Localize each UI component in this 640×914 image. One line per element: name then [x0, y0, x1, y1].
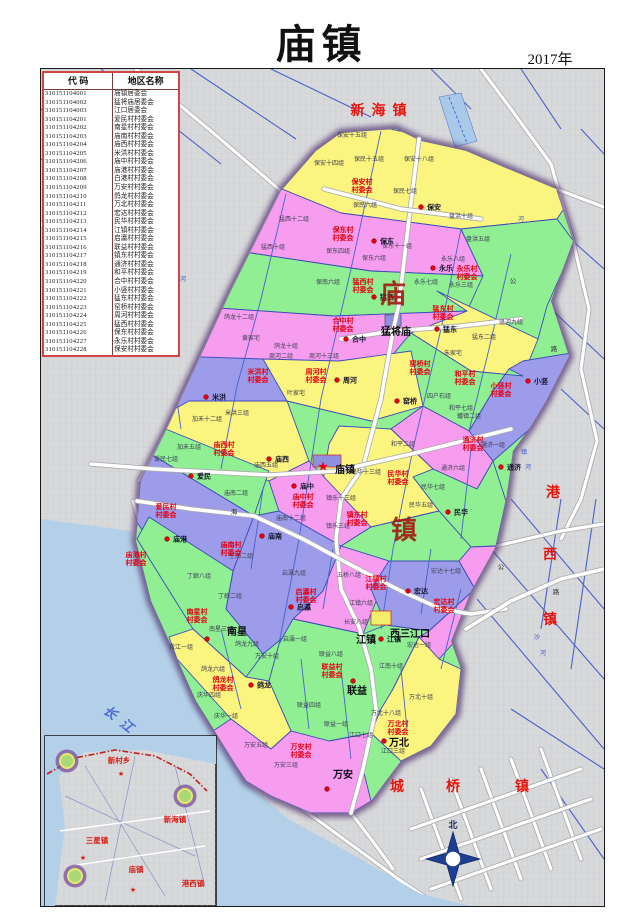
village-seat-dot: [419, 205, 424, 210]
legend-row: 310151104210鸽龙村村委会: [44, 193, 178, 202]
legend-name-cell: 庙镇居委会: [113, 90, 178, 99]
legend-code-cell: 310151104212: [44, 210, 113, 219]
legend-code-cell: 310151104208: [44, 175, 113, 184]
village-committee-label: 庙中村村委会: [293, 492, 315, 509]
neighbor-town-north: 新海镇: [351, 102, 414, 118]
village-committee-label: 合中村村委会: [332, 316, 355, 333]
legend-code-cell: 310151104206: [44, 158, 113, 167]
hamlet-label: 救江一组: [169, 643, 193, 651]
hamlet-label: 保南六组: [316, 278, 340, 286]
hamlet-label: 黄家宅: [242, 334, 260, 342]
legend-row: 310151104218通济村村委会: [44, 261, 178, 270]
hamlet-label: 保东四组: [326, 247, 350, 255]
legend-code-cell: 310151104217: [44, 252, 113, 261]
hamlet-label: 保东六组: [362, 254, 386, 262]
village-seat-name: 庙港: [173, 535, 188, 544]
hamlet-label: 周河二组: [269, 352, 293, 360]
village-seat-dot: [379, 637, 384, 642]
legend-code-cell: 310151104204: [44, 141, 113, 150]
village-committee-label: 庙港村村委会: [126, 550, 148, 567]
village-seat-dot: [260, 534, 265, 539]
legend-row: 310151104212宏达村村委会: [44, 210, 178, 219]
hamlet-label: 蟠镇二组: [457, 412, 481, 420]
page: { "page": {"title": "庙镇", "year": "2017年…: [0, 0, 640, 914]
neighbor-town-east-char: 港: [546, 484, 561, 500]
village-seat-name: 庙南: [268, 532, 282, 541]
legend-row: 310151104208白港村村委会: [44, 175, 178, 184]
legend-row: 310151104201爱民村村委会: [44, 116, 178, 125]
legend-name-cell: 鸽龙村村委会: [113, 193, 178, 202]
village-seat-name: 周河: [343, 376, 357, 385]
canal-name-char: 河: [540, 649, 546, 657]
legend-name-cell: 民华村村委会: [113, 218, 178, 227]
village-seat-dot: [289, 605, 294, 610]
legend-row: 310151104227永乐村村委会: [44, 338, 178, 347]
neighbor-town-south-char: 桥: [446, 778, 461, 794]
village-seat-name: 合中: [351, 335, 366, 344]
legend-name-cell: 庙南村村委会: [113, 133, 178, 142]
legend-name-cell: 镇东村村委会: [113, 252, 178, 261]
legend-row: 310151104206庙中村村委会: [44, 158, 178, 167]
legend-name-cell: 窑桥村村委会: [113, 304, 178, 313]
legend-code-cell: 310151104228: [44, 346, 113, 355]
legend-code-cell: 310151104003: [44, 107, 113, 116]
village-seat-dot: [205, 637, 210, 642]
village-seat-dot: [335, 378, 340, 383]
legend-code-cell: 310151104221: [44, 287, 113, 296]
village-seat-dot: [431, 266, 436, 271]
village-seat-name: 启瀛: [297, 603, 311, 612]
built-up-area: [371, 611, 391, 625]
town-name-label: 万北: [388, 736, 409, 749]
inset-highlight-area: [178, 789, 192, 803]
hamlet-label: 民华七组: [421, 483, 445, 491]
village-seat-name: 保安: [426, 203, 441, 212]
hamlet-label: 保民七组: [393, 187, 417, 195]
legend-code-cell: 310151104209: [44, 184, 113, 193]
hamlet-label: 联益八组: [319, 650, 343, 658]
legend-name-cell: 爱民村村委会: [113, 116, 178, 125]
hamlet-label: 鸽龙十二组: [224, 313, 254, 321]
legend-code-cell: 310151104222: [44, 295, 113, 304]
village-committee-label: 宏达村村委会: [434, 597, 456, 614]
village-seat-dot: [372, 239, 377, 244]
compass-north-label: 北: [448, 819, 457, 830]
legend-row: 310151104220合中村村委会: [44, 278, 178, 287]
village-committee-label: 猛东村村委会: [432, 304, 455, 321]
legend-code-cell: 310151104224: [44, 312, 113, 321]
village-seat-name: 保东: [379, 237, 394, 246]
hamlet-label: 朱家宅: [444, 349, 462, 357]
legend-header-name: 地区名称: [113, 73, 178, 90]
canal-name-char: 沙: [534, 634, 540, 641]
legend-name-cell: 南星村村委会: [113, 124, 178, 133]
legend-name-cell: 猛将庙居委会: [113, 99, 178, 108]
hamlet-label: 和平七组: [449, 404, 473, 412]
town-name-label: 万安: [332, 768, 353, 781]
legend-row: 310151104228保安村村委会: [44, 346, 178, 355]
town-name-label: 联益: [347, 684, 367, 697]
legend-row: 310151104002猛将庙居委会: [44, 99, 178, 108]
hamlet-label: 丁娘二组: [218, 592, 242, 600]
village-committee-label: 和平村村委会: [454, 369, 477, 386]
hamlet-label: 江口七组: [349, 731, 373, 739]
legend-name-cell: 万安村村委会: [113, 184, 178, 193]
inset-highlight-area: [60, 754, 74, 768]
legend-name-cell: 猛东村村委会: [113, 295, 178, 304]
village-seat-name: 鸽龙: [257, 681, 271, 690]
hamlet-label: 米洪三组: [225, 409, 249, 417]
legend-row: 310151104215启瀛村村委会: [44, 235, 178, 244]
inset-town-star: ★: [118, 770, 124, 778]
village-committee-label: 通济村村委会: [463, 435, 485, 452]
hamlet-label: 联益一组: [324, 720, 348, 728]
hamlet-label: 宏达一组: [407, 641, 431, 649]
village-seat-name: 通济: [507, 463, 522, 472]
inset-town-label: 新海镇: [164, 814, 187, 824]
hamlet-label: 宏达十七组: [431, 567, 461, 575]
hamlet-label: 盘洪五组: [466, 235, 490, 243]
village-seat-dot: [499, 465, 504, 470]
hamlet-label: 猛东二组: [472, 333, 496, 341]
legend-row: 310151104217镇东村村委会: [44, 252, 178, 261]
hamlet-label: 启瀛一组: [283, 635, 307, 643]
hamlet-label: 盘洪十组: [449, 212, 473, 220]
legend-header-row: 代 码 地区名称: [44, 73, 178, 90]
village-seat-name: 庙西: [275, 455, 289, 464]
legend-code-cell: 310151104001: [44, 90, 113, 99]
inset-town-star: ★: [80, 854, 86, 862]
village-committee-label: 江镇村村委会: [366, 574, 388, 591]
legend-row: 310151104216联益村村委会: [44, 244, 178, 253]
inset-map: 新村乡新海镇三星镇庙镇港西镇★★★: [45, 736, 216, 906]
village-seat-name: 永乐: [438, 264, 453, 273]
hamlet-label: 万安五组: [244, 741, 268, 749]
legend-name-cell: 江镇村村委会: [113, 227, 178, 236]
village-seat-dot: [526, 379, 531, 384]
hamlet-label: 永乐八组: [441, 255, 465, 263]
legend-row: 310151104205米洪村村委会: [44, 150, 178, 159]
village-committee-label: 米洪村村委会: [247, 367, 270, 384]
hamlet-label: 丁娘八组: [187, 572, 211, 580]
village-committee-label: 保安村村委会: [351, 177, 374, 194]
village-committee-label: 联益村村委会: [322, 662, 344, 679]
village-committee-label: 窑桥村村委会: [410, 359, 432, 376]
village-committee-label: 万北村村委会: [387, 719, 410, 736]
village-committee-label: 南星村村委会: [187, 607, 209, 624]
legend-code-cell: 310151104202: [44, 124, 113, 133]
legend-code-cell: 310151104227: [44, 338, 113, 347]
hamlet-label: 江镇六组: [349, 599, 373, 607]
legend-row: 310151104202南星村村委会: [44, 124, 178, 133]
village-seat-dot: [165, 537, 170, 542]
village-seat-dot: [406, 589, 411, 594]
village-seat-name: 爱民: [197, 472, 211, 481]
compass-center: [445, 851, 461, 867]
village-seat-dot: [292, 484, 297, 489]
village-seat-dot: [435, 327, 440, 332]
village-seat-dot: [267, 457, 272, 462]
legend-code-cell: 310151104207: [44, 167, 113, 176]
village-seat-dot: [372, 295, 377, 300]
town-name-label: 西三江口: [390, 627, 430, 640]
legend-name-cell: 白港村村委会: [113, 175, 178, 184]
legend-name-cell: 保东村村委会: [113, 329, 178, 338]
legend-name-cell: 启瀛村村委会: [113, 235, 178, 244]
legend-code-cell: 310151104205: [44, 150, 113, 159]
neighbor-town-south-char: 镇: [515, 778, 529, 794]
hamlet-label: 保安十五组: [337, 131, 367, 139]
hamlet-label: 通济一组: [481, 441, 505, 449]
legend-name-cell: 周河村村委会: [113, 312, 178, 321]
village-seat-dot: [325, 787, 330, 792]
legend-row: 310151104225猛西村村委会: [44, 321, 178, 330]
village-committee-label: 周河村村委会: [306, 367, 328, 384]
legend-name-cell: 合中村村委会: [113, 278, 178, 287]
village-seat-dot: [344, 337, 349, 342]
neighbor-town-east-char: 西: [543, 546, 557, 562]
map-big-title-char: 庙: [380, 279, 406, 309]
legend-row: 310151104223窑桥村村委会: [44, 304, 178, 313]
village-committee-label: 启瀛村村委会: [296, 587, 318, 604]
village-seat-dot: [189, 474, 194, 479]
hamlet-label: 庙南十二组: [276, 514, 306, 522]
hamlet-label: 加禾十二组: [192, 415, 222, 423]
inset-town-label: 庙镇: [129, 864, 144, 874]
village-committee-label: 庙南村村委会: [221, 540, 243, 557]
village-committee-label: 猛西村村委会: [352, 277, 375, 294]
village-seat-name: 小竖: [533, 377, 548, 386]
hamlet-label: 和平二组: [391, 440, 415, 448]
inset-town-label: 新村乡: [108, 755, 131, 765]
inset-town-star: ★: [130, 886, 136, 894]
hamlet-label: 周河十三组: [309, 352, 339, 360]
hamlet-label: 庙南二组: [224, 489, 248, 497]
legend-row: 310151104213民华村村委会: [44, 218, 178, 227]
legend-row: 310151104219和平村村委会: [44, 269, 178, 278]
hamlet-label: 永乐七组: [414, 278, 438, 286]
legend-code-cell: 310151104225: [44, 321, 113, 330]
inset-highlight-area: [68, 869, 82, 883]
hamlet-label: 江南十组: [379, 662, 403, 670]
village-seat-name: 宏达: [414, 587, 428, 596]
hamlet-label: 猛西十组: [261, 243, 285, 251]
hamlet-label: 保民六组: [353, 201, 377, 209]
village-seat-name: 米洪: [211, 393, 226, 402]
village-committee-label: 保东村村委会: [332, 225, 355, 242]
legend-code-cell: 310151104203: [44, 133, 113, 142]
legend-code-cell: 310151104214: [44, 227, 113, 236]
hamlet-label: 五桥八组: [337, 571, 361, 579]
hamlet-label: 四户石组: [427, 392, 451, 400]
hamlet-label: 保民十五组: [354, 155, 384, 163]
legend-row: 310151104222猛东村村委会: [44, 295, 178, 304]
map-year: 2017年: [505, 48, 595, 69]
legend-name-cell: 庙西村村委会: [113, 141, 178, 150]
hamlet-label: 加禾五组: [177, 443, 201, 451]
road-name-char: 路: [551, 344, 558, 353]
hamlet-label: 竖河九组: [499, 318, 523, 326]
legend-row: 310151104003江口居委会: [44, 107, 178, 116]
hamlet-label: 叶家宅: [287, 389, 305, 397]
town-name-label: 猛将庙: [380, 325, 411, 338]
legend-code-cell: 310151104201: [44, 116, 113, 125]
town-seat-star: ★: [318, 461, 328, 473]
legend-code-cell: 310151104216: [44, 244, 113, 253]
legend-row: 310151104207庙港村村委会: [44, 167, 178, 176]
legend-name-cell: 万北村村委会: [113, 201, 178, 210]
legend-name-cell: 小竖村村委会: [113, 287, 178, 296]
neighbor-town-south-char: 城: [390, 778, 404, 794]
legend-code-cell: 310151104219: [44, 269, 113, 278]
legend-row: 310151104204庙西村村委会: [44, 141, 178, 150]
village-seat-name: 庙中: [300, 482, 314, 491]
legend-name-cell: 和平村村委会: [113, 269, 178, 278]
village-seat-dot: [382, 739, 387, 744]
inset-town-label: 港西镇: [182, 878, 205, 888]
village-seat-dot: [249, 683, 254, 688]
map-big-title-char: 镇: [391, 515, 417, 545]
village-committee-label: 民华村村委会: [388, 469, 410, 486]
town-seat-name: 庙镇: [335, 463, 355, 476]
canal-name-char: 河: [518, 215, 524, 223]
legend-row: 310151104221小竖村村委会: [44, 287, 178, 296]
hamlet-label: 万安十组: [255, 652, 279, 660]
hamlet-label: 猛西十二组: [279, 215, 309, 223]
legend-row: 310151104226保东村村委会: [44, 329, 178, 338]
legend-row: 310151104214江镇村村委会: [44, 227, 178, 236]
legend-name-cell: 庙中村村委会: [113, 158, 178, 167]
legend-code-cell: 310151104002: [44, 99, 113, 108]
road-name-char: 海: [231, 507, 238, 516]
village-seat-dot: [446, 510, 451, 515]
canal-name-char: 河: [180, 275, 186, 283]
legend-code-cell: 310151104218: [44, 261, 113, 270]
legend-name-cell: 保安村村委会: [113, 346, 178, 355]
legend-header-code: 代 码: [44, 73, 113, 90]
hamlet-label: 爱民七组: [154, 455, 178, 463]
neighbor-town-east-char: 镇: [543, 611, 557, 627]
hamlet-label: 镇乐十三组: [326, 494, 356, 502]
hamlet-label: 鸽龙六组: [201, 665, 225, 673]
village-committee-label: 镇东村村委会: [347, 510, 369, 527]
legend-table: 代 码 地区名称 310151104001庙镇居委会310151104002猛将…: [42, 71, 180, 357]
legend-code-cell: 310151104226: [44, 329, 113, 338]
hamlet-label: 鸽龙九组: [235, 640, 259, 648]
hamlet-label: 保安十四组: [314, 159, 344, 167]
legend-row: 310151104203庙南村村委会: [44, 133, 178, 142]
road-name-char: 公: [510, 278, 517, 285]
hamlet-label: 庆华四组: [197, 691, 221, 699]
village-seat-dot: [395, 399, 400, 404]
canal-name-char: 河: [525, 463, 531, 471]
village-committee-label: 庙西村村委会: [214, 440, 236, 457]
legend-code-cell: 310151104223: [44, 304, 113, 313]
village-seat-name: 民华: [454, 508, 468, 517]
hamlet-label: 长安八组: [344, 618, 368, 626]
hamlet-label: 启瀛九组: [282, 569, 306, 577]
legend-row: 310151104224周河村村委会: [44, 312, 178, 321]
canal-name-char: 镇: [521, 448, 527, 456]
village-committee-label: 万安村村委会: [290, 742, 313, 759]
legend-code-cell: 310151104210: [44, 193, 113, 202]
village-seat-name: 猛东: [442, 325, 457, 334]
village-seat-name: 窑桥: [403, 397, 418, 406]
road-name-char: 公: [498, 564, 505, 571]
legend-code-cell: 310151104211: [44, 201, 113, 210]
hamlet-label: 联益四组: [297, 701, 321, 709]
village-committee-label: 小竖村村委会: [490, 381, 513, 398]
hamlet-label: 万北十八组: [371, 709, 401, 717]
legend-code-cell: 310151104220: [44, 278, 113, 287]
village-seat-dot: [351, 679, 356, 684]
legend-row: 310151104211万北村村委会: [44, 201, 178, 210]
legend-name-cell: 江口居委会: [113, 107, 178, 116]
town-name-label: 江镇: [356, 633, 376, 646]
legend-code-cell: 310151104215: [44, 235, 113, 244]
town-name-label: 南星: [227, 625, 247, 638]
hamlet-label: 保安十八组: [404, 155, 434, 163]
village-seat-dot: [204, 395, 209, 400]
legend-name-cell: 宏达村村委会: [113, 210, 178, 219]
hamlet-label: 万安三组: [274, 761, 298, 769]
hamlet-label: 民华五组: [409, 501, 433, 509]
legend-row: 310151104001庙镇居委会: [44, 90, 178, 99]
hamlet-label: 通济六组: [441, 464, 465, 472]
hamlet-label: 庆华一组: [214, 712, 238, 720]
legend-row: 310151104209万安村村委会: [44, 184, 178, 193]
hamlet-label: 万北十组: [409, 693, 433, 701]
road-name-char: 路: [553, 587, 560, 596]
village-committee-label: 永乐村村委会: [456, 264, 479, 281]
village-committee-label: 鸽龙村村委会: [213, 675, 235, 692]
village-committee-label: 爱民村村委会: [156, 502, 178, 519]
hamlet-label: 永乐三组: [449, 281, 473, 289]
inset-town-label: 三星镇: [86, 835, 109, 845]
hamlet-label: 鸽龙十组: [274, 342, 298, 350]
hamlet-label: 民华十三组: [351, 468, 381, 476]
legend-code-cell: 310151104213: [44, 218, 113, 227]
